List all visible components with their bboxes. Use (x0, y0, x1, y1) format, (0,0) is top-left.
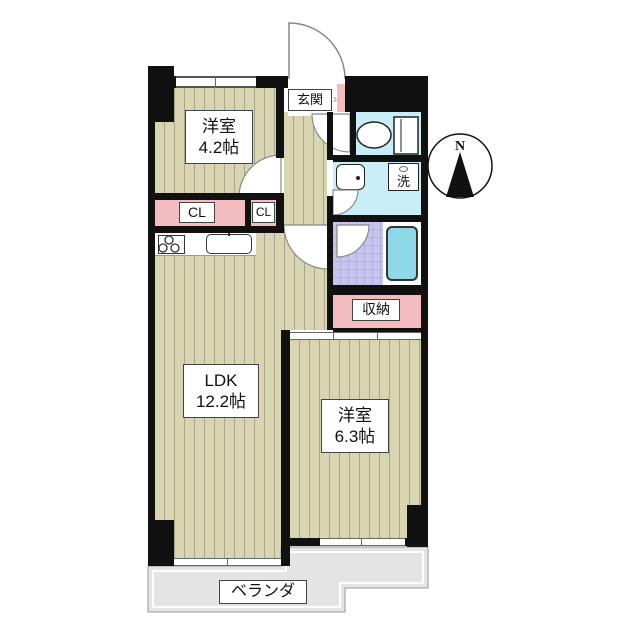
ldk-name: LDK (204, 370, 237, 391)
window-western1-tick (215, 76, 216, 88)
entrance-door-arc (289, 23, 345, 79)
sliding-door-western2-top (290, 332, 421, 340)
ldk-size: 12.2帖 (196, 391, 246, 412)
closet2-text: CL (256, 205, 271, 220)
wall-top-b (256, 76, 288, 88)
wall-left (148, 66, 155, 566)
storage-text: 収納 (362, 301, 390, 319)
western2-size: 6.3帖 (335, 426, 376, 447)
wall-toilet-bottom (333, 155, 428, 162)
wall-closet-divider (245, 193, 251, 233)
compass-north-label: N (455, 139, 465, 154)
wall-wet-divider-upper (327, 112, 333, 160)
toilet-vestibule (333, 112, 350, 155)
wall-toilet-left (350, 112, 356, 155)
wall-right (421, 112, 428, 505)
wall-top-right-block (345, 76, 428, 112)
entrance-text: 玄関 (297, 92, 323, 108)
ldk-label: LDK 12.2帖 (183, 364, 259, 418)
wall-closet-bottom (148, 226, 284, 233)
western1-name: 洋室 (202, 116, 236, 137)
wall-top-a (148, 76, 176, 88)
wall-ldk-western2-divider (281, 330, 290, 566)
veranda-label: ベランダ (219, 580, 307, 604)
floor-plan: N 洋室 4.2帖 LDK 12.2帖 洋室 6.3帖 玄関 › (0, 0, 640, 640)
bathtub (386, 226, 418, 281)
veranda-text: ベランダ (231, 582, 295, 602)
western2-label: 洋室 6.3帖 (321, 399, 389, 453)
laundry-pan: 洗 (388, 163, 419, 191)
bathroom-tile-floor (333, 222, 383, 285)
closet2-label: CL (252, 202, 275, 223)
laundry-text: 洗 (397, 171, 410, 190)
wall-closet-top (148, 193, 284, 200)
compass-circle (428, 134, 492, 198)
western2-name: 洋室 (338, 405, 372, 426)
wall-bath-bottom (333, 285, 428, 295)
window-western2-bottom (320, 538, 405, 546)
wall-washroom-bottom (333, 215, 428, 222)
window-western2-tick (361, 538, 362, 546)
entrance-arrow-icon: › (333, 91, 337, 106)
window-ldk-tick (227, 558, 228, 566)
wall-western2-bottom-left (288, 538, 320, 546)
western1-size: 4.2帖 (199, 137, 240, 158)
closet1-text: CL (188, 204, 206, 222)
washbasin-drain-dot (356, 176, 360, 180)
compass-needle-icon (446, 152, 474, 197)
entrance-label: 玄関 (288, 89, 332, 111)
wall-pillar-bottomleft (148, 520, 174, 566)
toilet-room-floor (356, 112, 421, 155)
storage-label: 収納 (352, 299, 400, 321)
wall-western1-right-upper (276, 88, 284, 158)
closet1-label: CL (179, 202, 215, 223)
sliding-door-tick-2 (377, 332, 378, 340)
hallway-floor (284, 112, 327, 233)
window-western1-top (176, 76, 256, 88)
kitchen-sink-icon (206, 234, 252, 254)
sliding-door-tick-1 (333, 332, 334, 340)
wall-pillar-bottomright (407, 505, 428, 547)
western1-label: 洋室 4.2帖 (185, 110, 253, 164)
stove-icon (158, 235, 185, 254)
washbasin-icon (336, 164, 365, 190)
